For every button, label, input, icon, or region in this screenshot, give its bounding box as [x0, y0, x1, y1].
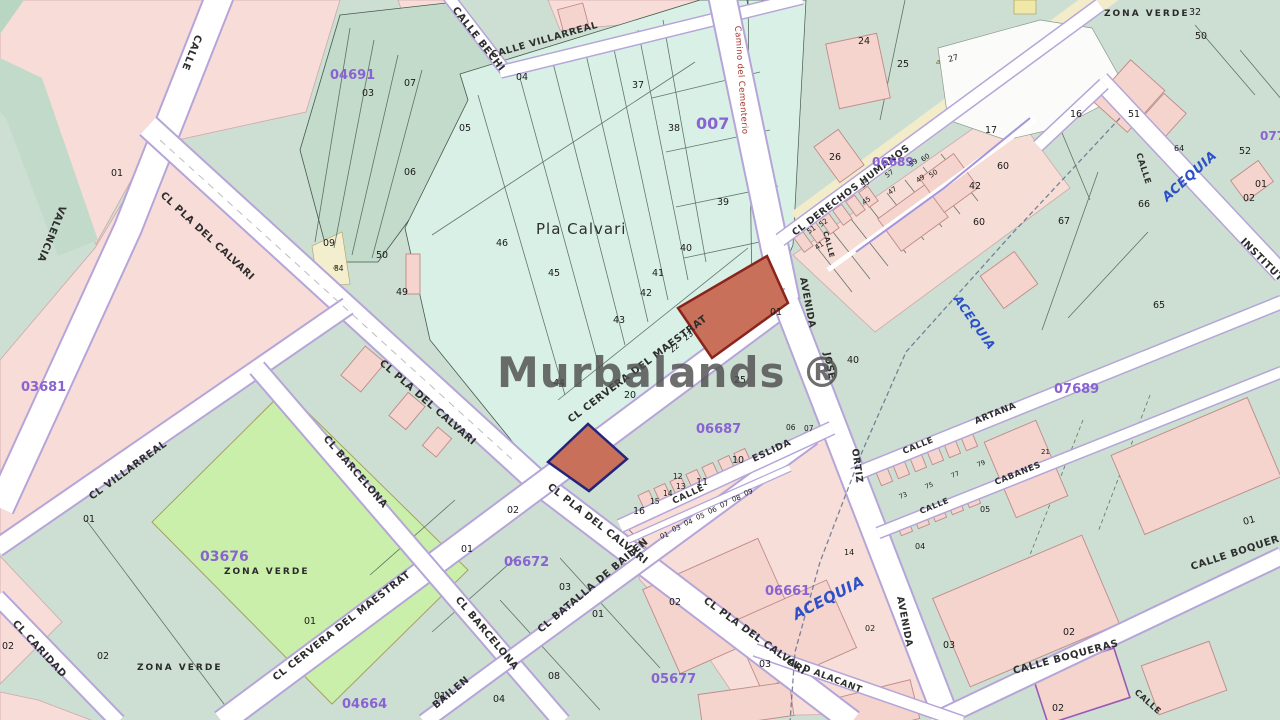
- parcel-number: 40: [680, 243, 692, 254]
- zone-code: 06672: [504, 555, 549, 570]
- parcel-number: 51: [1128, 109, 1140, 120]
- parcel-number: 12: [673, 472, 683, 481]
- zone-code: 04691: [330, 68, 375, 83]
- zone-code: 04664: [342, 697, 387, 712]
- parcel-number: 04: [516, 72, 528, 83]
- parcel-number: 02: [1063, 627, 1075, 638]
- parcel-number: 01: [592, 609, 604, 620]
- parcel-number: 41: [652, 268, 664, 279]
- parcel-number: 42: [969, 181, 981, 192]
- parcel-number: 05: [980, 505, 990, 514]
- parcel-number: 49: [396, 287, 408, 298]
- parcel-number: 14: [844, 548, 854, 557]
- parcel-number: 45: [548, 268, 560, 279]
- zone-code: 06661: [765, 584, 810, 599]
- watermark: Murbalands ®: [497, 348, 844, 397]
- area-label-zona-verde: ZONA VERDE: [1104, 9, 1189, 19]
- map-svg: CALLE VALENCIA CALLE BECHI CALLE VILLARR…: [0, 0, 1280, 720]
- parcel-number: 46: [496, 238, 508, 249]
- parcel-number: 32: [1189, 7, 1201, 18]
- parcel-number: 02: [1243, 193, 1255, 204]
- parcel-number: 02: [1052, 703, 1064, 714]
- area-label-zona-verde: ZONA VERDE: [137, 663, 222, 673]
- parcel-number: 02: [865, 624, 875, 633]
- parcel-number: 01: [83, 514, 95, 525]
- parcel-number: 01: [461, 544, 473, 555]
- parcel-number: 02: [507, 505, 519, 516]
- zone-code: 077: [1260, 129, 1280, 143]
- parcel-number: 17: [985, 125, 997, 136]
- parcel-number: 07: [404, 78, 416, 89]
- zone-code: 07689: [1054, 382, 1099, 397]
- parcel-number: 01: [770, 307, 782, 318]
- parcel-number: 21: [1041, 448, 1050, 456]
- letter-annotation: a: [333, 263, 337, 271]
- parcel-number: 08: [548, 671, 560, 682]
- parcel-number: 10: [732, 455, 744, 466]
- parcel-number: 01: [111, 168, 123, 179]
- parcel-number: 50: [376, 250, 388, 261]
- zone-code: 03676: [200, 549, 249, 565]
- parcel-number: 25: [897, 59, 909, 70]
- parcel-number: 42: [640, 288, 652, 299]
- parcel-number: 26: [829, 152, 841, 163]
- parcel-number: 14: [663, 489, 673, 498]
- parcel-number: 01: [434, 691, 446, 702]
- parcel-number: 52: [1239, 146, 1251, 157]
- area-label-pla-calvari: Pla Calvari: [536, 220, 626, 238]
- parcel-number: 04: [915, 542, 925, 551]
- parcel-number: 04: [493, 694, 505, 705]
- parcel-number: 06: [786, 423, 796, 432]
- area-label-zona-verde: ZONA VERDE: [224, 567, 309, 577]
- parcel-number: 65: [1153, 300, 1165, 311]
- parcel-number: 03: [943, 640, 955, 651]
- parcel-number: 64: [1174, 144, 1184, 153]
- zone-code: 06687: [696, 422, 741, 437]
- parcel-number: 60: [973, 217, 985, 228]
- parcel-number: 03: [759, 659, 771, 670]
- parcel-number: 15: [650, 497, 660, 506]
- zone-code: 05677: [651, 672, 696, 687]
- parcel-number: 38: [668, 123, 680, 134]
- parcel-number: 09: [323, 238, 335, 249]
- parcel-number: 11: [696, 477, 708, 488]
- parcel-number: 07: [804, 424, 814, 433]
- parcel-number: 40: [847, 355, 859, 366]
- parcel-number: 06: [404, 167, 416, 178]
- parcel-number: 01: [304, 616, 316, 627]
- parcel-number: 16: [1070, 109, 1082, 120]
- zone-code: 03681: [21, 380, 66, 395]
- parcel-number: 67: [1058, 216, 1070, 227]
- parcel-number: 01: [1255, 179, 1267, 190]
- parcel-number: 50: [1195, 31, 1207, 42]
- parcel-number: 43: [613, 315, 625, 326]
- cadastral-map-canvas: CALLE VALENCIA CALLE BECHI CALLE VILLARR…: [0, 0, 1280, 720]
- parcel-number: 02: [97, 651, 109, 662]
- letter-annotation: a: [936, 58, 940, 66]
- parcel-number: 16: [633, 506, 645, 517]
- parcel-number: 66: [1138, 199, 1150, 210]
- parcel-number: 39: [717, 197, 729, 208]
- parcel-number: 02: [669, 597, 681, 608]
- parcel-number: 05: [459, 123, 471, 134]
- parcel-number: 24: [858, 36, 870, 47]
- parcel-number: 37: [632, 80, 644, 91]
- zone-code: 007: [696, 114, 729, 133]
- parcel-number: 03: [559, 582, 571, 593]
- parcel-number: 13: [676, 482, 686, 491]
- parcel-number: 02: [2, 641, 14, 652]
- parcel-number: 03: [362, 88, 374, 99]
- parcel-number: 60: [997, 161, 1009, 172]
